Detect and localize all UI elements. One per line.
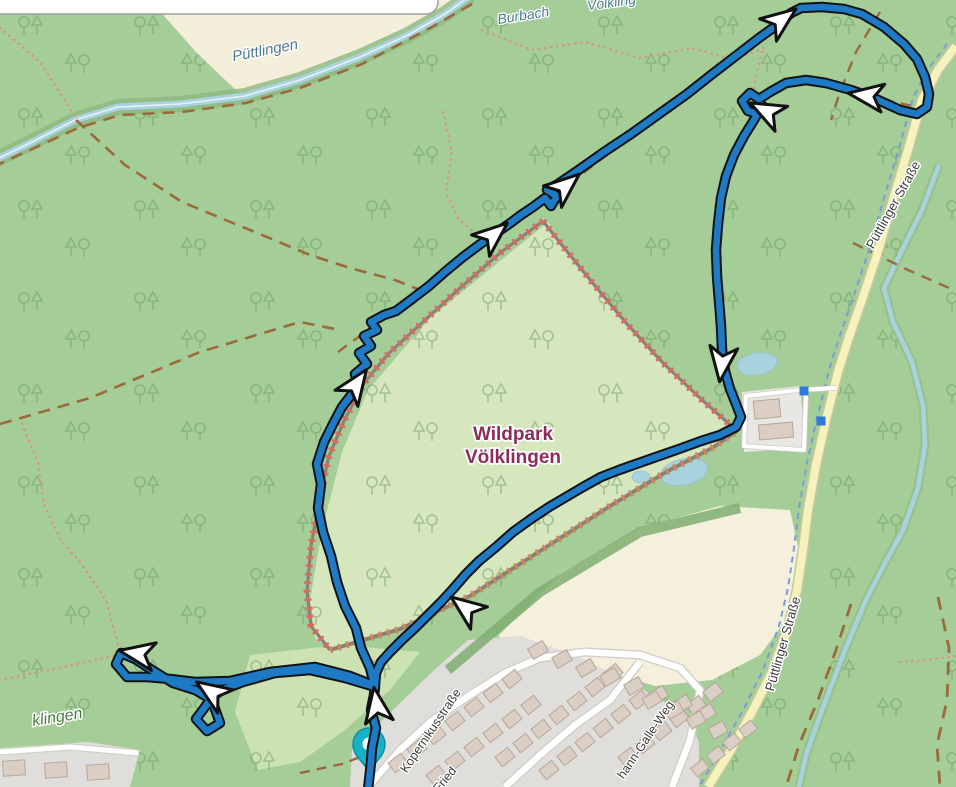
building	[45, 762, 68, 778]
park-label-wildpark-line2: Völklingen	[465, 447, 561, 468]
park-label-wildpark-line1: Wildpark	[473, 424, 553, 445]
map-square-icon	[800, 387, 809, 396]
building	[753, 399, 780, 419]
building	[87, 764, 110, 780]
building	[758, 422, 793, 440]
popup-panel[interactable]	[0, 0, 438, 14]
building	[3, 760, 26, 776]
map-square-icon	[817, 417, 826, 426]
map-canvas[interactable]: PüttlingenBurbachVölklingPüttlinger Stra…	[0, 0, 956, 787]
map-viewport[interactable]: PüttlingenBurbachVölklingPüttlinger Stra…	[0, 0, 956, 787]
